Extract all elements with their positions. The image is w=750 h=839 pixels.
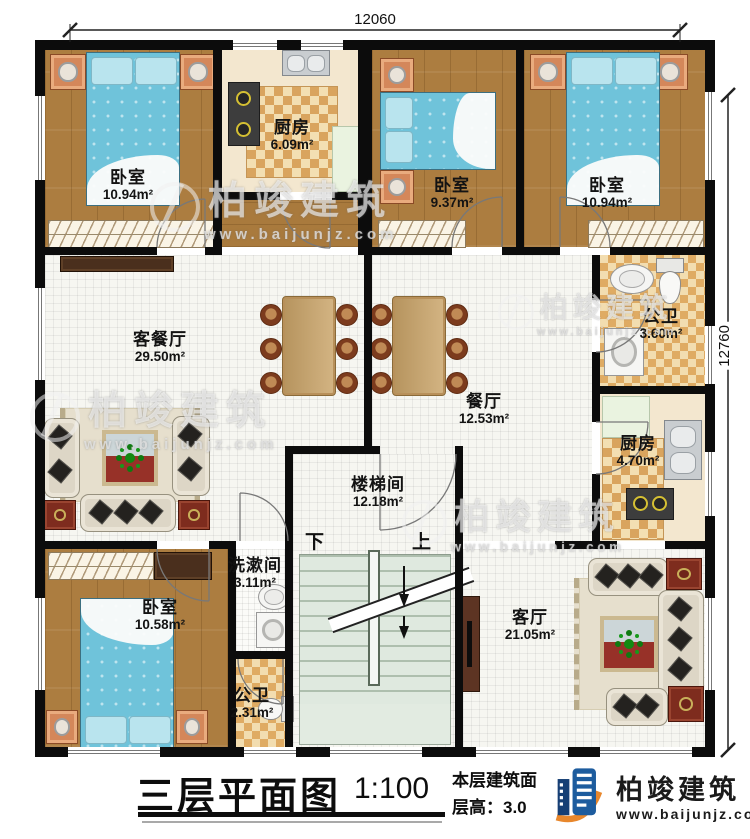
room-label-bedroom-tr: 卧室 10.94m² — [582, 176, 632, 210]
dimension-right-value: 12760 — [716, 322, 733, 370]
stove — [626, 488, 674, 520]
room-label-washroom: 洗漱间 3.11m² — [228, 556, 282, 590]
room-label-living-dining: 客餐厅 29.50m² — [133, 330, 187, 364]
wardrobe — [48, 552, 154, 580]
dining-chair — [260, 372, 282, 394]
stairs-landing — [299, 704, 451, 745]
wardrobe — [588, 220, 704, 248]
room-label-living-br: 客厅 21.05m² — [505, 608, 555, 642]
brand-logo: 柏竣建筑 www.baijunjz.com — [548, 762, 748, 836]
plant-icon — [624, 639, 634, 649]
room-label-bedroom-tc: 卧室 9.37m² — [431, 176, 474, 210]
dining-chair — [336, 372, 358, 394]
bed-sheet — [453, 93, 495, 169]
room-label-bedroom-tl: 卧室 10.94m² — [103, 168, 153, 202]
nightstand — [380, 170, 414, 204]
floor-area-text: 本层建筑面 — [452, 766, 537, 791]
title-underline-thick — [138, 812, 445, 817]
pillow — [129, 716, 171, 744]
building-logo-icon — [548, 762, 612, 828]
pillow — [85, 716, 127, 744]
room-label-dining: 餐厅 12.53m² — [459, 392, 509, 426]
pillow — [385, 131, 413, 163]
floorplan-canvas: 卧室 10.94m² 厨房 6.09m² 卧室 9.37m² 卧室 10.94m… — [0, 0, 750, 839]
dining-chair — [260, 304, 282, 326]
dining-table — [282, 296, 336, 396]
pillow — [91, 57, 133, 85]
brand-name: 柏竣建筑 — [616, 768, 740, 807]
nightstand — [180, 54, 216, 90]
dining-chair — [336, 304, 358, 326]
coffee-table — [600, 616, 658, 672]
side-table — [44, 500, 76, 530]
toilet — [656, 258, 684, 304]
dining-table — [392, 296, 446, 396]
side-table — [666, 558, 702, 590]
dresser — [154, 552, 212, 580]
room-label-bath-bl: 公卫 2.31m² — [231, 686, 274, 720]
sideboard — [60, 256, 174, 272]
nightstand — [46, 710, 78, 744]
title-underline-thin — [142, 821, 442, 823]
pillow — [135, 57, 177, 85]
dining-chair — [370, 372, 392, 394]
dining-chair — [446, 338, 468, 360]
room-label-stairwell: 楼梯间 12.18m² — [351, 475, 405, 509]
stove — [228, 82, 260, 146]
dimension-top-value: 12060 — [338, 11, 412, 28]
dining-chair — [260, 338, 282, 360]
floor-height-text: 层高：3.0 — [452, 793, 527, 818]
wardrobe — [378, 220, 466, 248]
kitchen-sink — [282, 50, 330, 76]
dining-chair — [370, 304, 392, 326]
floor-corridor-top — [222, 200, 368, 247]
nightstand — [176, 710, 208, 744]
washbasin — [610, 264, 654, 294]
washing-machine — [256, 612, 290, 648]
plan-scale: 1:100 — [354, 772, 429, 806]
stairs-down-label: 下 — [305, 527, 324, 554]
pillow — [385, 97, 413, 129]
dining-chair — [446, 372, 468, 394]
kitchen-counter — [602, 396, 650, 438]
tv-cabinet — [462, 596, 480, 692]
side-table — [668, 686, 704, 722]
kitchen-counter — [332, 126, 360, 192]
stairs-up-label: 上 — [412, 527, 431, 554]
wardrobe — [48, 220, 216, 248]
washing-machine — [604, 328, 644, 376]
pillow — [615, 57, 657, 85]
nightstand — [380, 58, 414, 92]
room-label-kitchen-top: 厨房 6.09m² — [271, 118, 314, 152]
nightstand — [50, 54, 86, 90]
side-table — [178, 500, 210, 530]
double-bed — [380, 92, 496, 170]
room-label-bedroom-bl: 卧室 10.58m² — [135, 598, 185, 632]
dining-chair — [336, 338, 358, 360]
room-label-bath-right: 公卫 3.60m² — [640, 307, 683, 341]
brand-website: www.baijunjz.com — [616, 806, 750, 822]
pillow — [571, 57, 613, 85]
nightstand — [530, 54, 566, 90]
coffee-table — [102, 430, 158, 486]
plant-icon — [125, 453, 135, 463]
kitchen-sink — [664, 420, 702, 480]
dining-chair — [370, 338, 392, 360]
room-label-kitchen-right: 厨房 4.70m² — [617, 434, 660, 468]
dining-chair — [446, 304, 468, 326]
